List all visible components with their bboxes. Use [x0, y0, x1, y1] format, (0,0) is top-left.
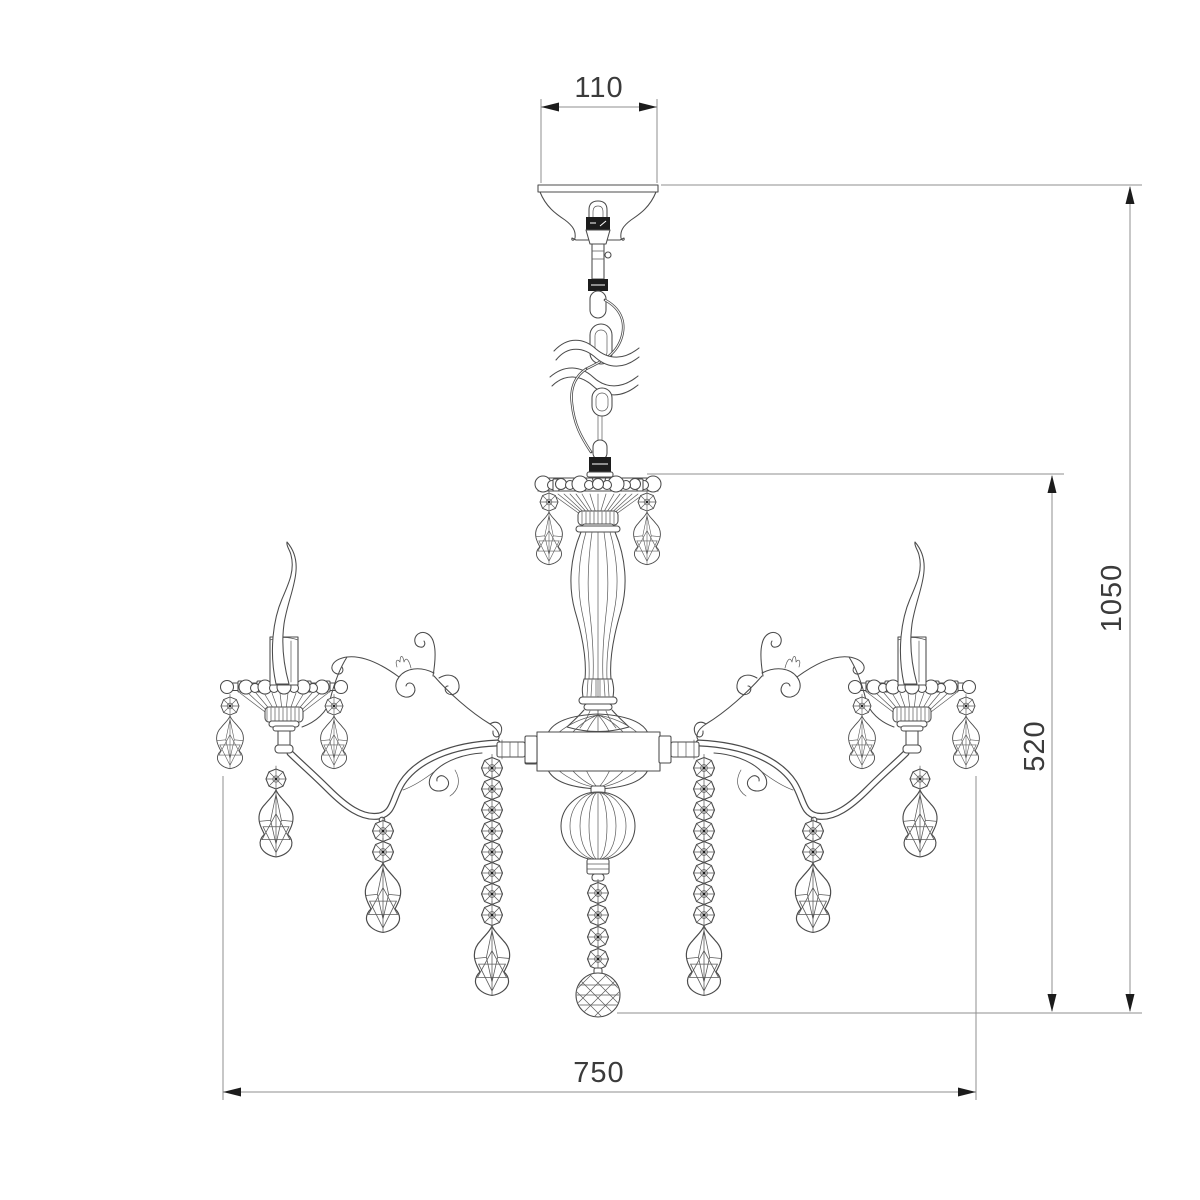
center-hub: [525, 732, 660, 771]
crown-bead-ring: [535, 476, 661, 492]
dim-body-height-label: 520: [1019, 720, 1051, 771]
drawing-sheet: 110 1050 520 750: [0, 0, 1200, 1200]
crown-drop: [536, 490, 563, 564]
left-arm-assembly: [217, 632, 537, 995]
dim-overall-width-label: 750: [573, 1057, 624, 1089]
center-bead-strand: [588, 879, 609, 972]
dimension-canopy-width: 110: [541, 72, 657, 183]
dim-overall-height-label: 1050: [1096, 564, 1128, 633]
crystal-ball-finial: [530, 960, 666, 1030]
glass-column: [567, 526, 629, 732]
onion-glass-ball: [561, 786, 635, 881]
suspension-chain: [550, 201, 639, 484]
crown-drop: [634, 490, 661, 564]
crown-cup: [552, 494, 644, 530]
dim-canopy-width-label: 110: [574, 72, 623, 104]
chandelier-technical-drawing: 110 1050 520 750: [0, 0, 1200, 1200]
right-arm-assembly: [659, 632, 979, 995]
